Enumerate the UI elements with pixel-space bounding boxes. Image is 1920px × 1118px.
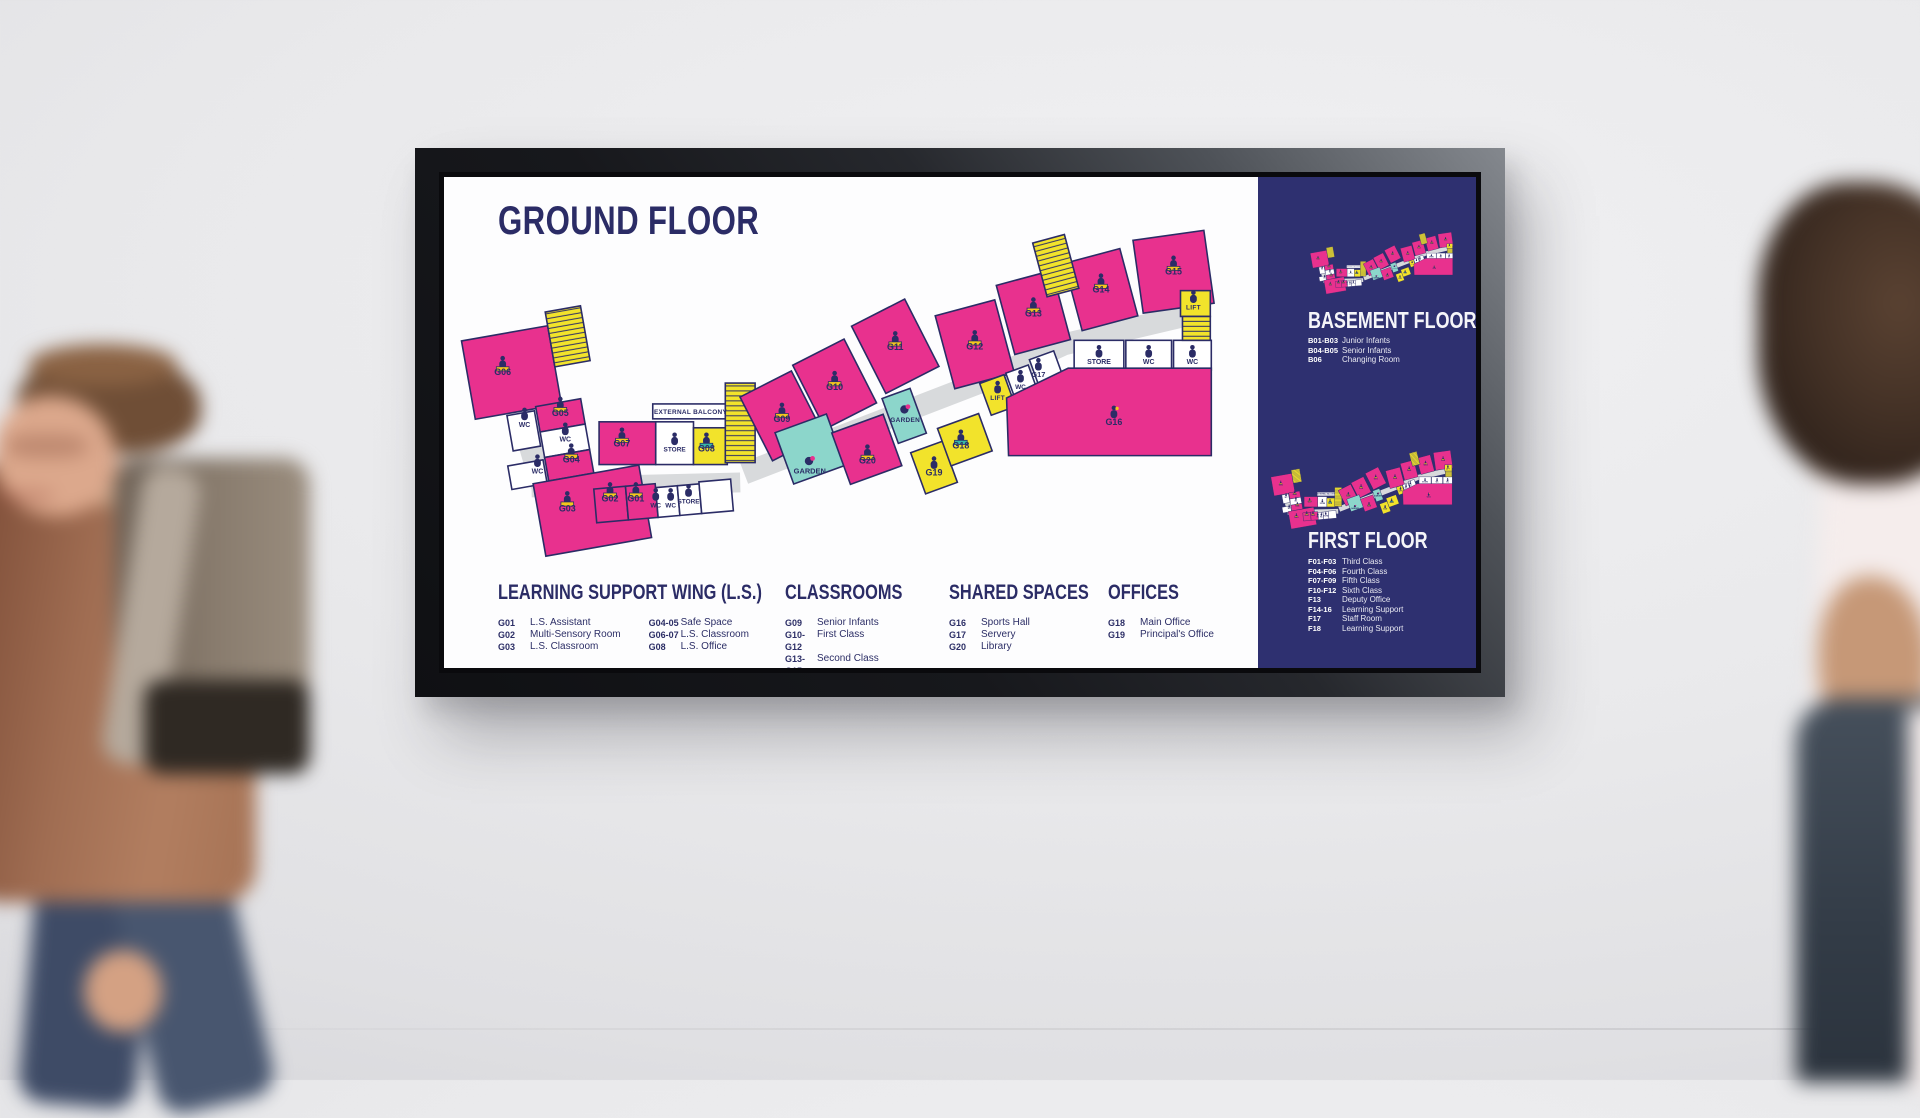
ground-floor-map: G06 G05 G04 G03 G02 G01 G07 G08 WC WC WC…: [450, 225, 1260, 560]
room-name: Library: [981, 641, 1012, 653]
room-name: Second Class: [817, 653, 879, 668]
legend-row: G13-G15Second Class: [785, 653, 879, 668]
room-label-g10: G10: [826, 382, 843, 392]
room-code: G17: [949, 629, 981, 641]
room-label-g14: G14: [1093, 285, 1110, 295]
legend-row: F17Staff Room: [1308, 614, 1403, 624]
room-code: B04-B05: [1308, 346, 1342, 356]
room-name: First Class: [817, 629, 864, 653]
room-code: G16: [949, 617, 981, 629]
legend-row: B01-B03Junior Infants: [1308, 336, 1400, 346]
room-name: L.S. Classroom: [681, 629, 749, 641]
room-label-wc: WC: [532, 469, 544, 476]
legend-row: G03L.S. Classroom: [498, 641, 621, 653]
legend-column: G04-05Safe Space G06-07L.S. Classroom G0…: [649, 617, 749, 653]
room-code: G08: [649, 641, 681, 653]
boy-backpack-bottom: [144, 680, 310, 774]
legend-row: G06-07L.S. Classroom: [649, 629, 749, 641]
room-name: Staff Room: [1342, 614, 1382, 624]
room-code: G09: [785, 617, 817, 629]
legend-row: B04-B05Senior Infants: [1308, 346, 1400, 356]
legend-row: G08L.S. Office: [649, 641, 749, 653]
room-label-wc: WC: [1015, 384, 1026, 391]
legend-row: F10-F12Sixth Class: [1308, 586, 1403, 596]
pedestrian-hair: [1758, 182, 1920, 484]
room-name: Third Class: [1342, 557, 1382, 567]
legend-row: G18Main Office: [1108, 617, 1214, 629]
boy-hand: [84, 950, 162, 1032]
room-code: G06-07: [649, 629, 681, 641]
room-label-g11: G11: [887, 342, 903, 352]
room-label-g08: G08: [698, 444, 715, 454]
room-label-g18: G18: [952, 441, 969, 451]
legend-section-title: LEARNING SUPPORT WING (L.S.): [498, 581, 768, 607]
room-label-g01: G01: [627, 493, 644, 503]
photo-scene: { "sign": { "title": "GROUND FLOOR", "co…: [0, 0, 1920, 1080]
room-label-g09: G09: [773, 414, 790, 424]
ground-floor-panel: GROUND FLOOR: [444, 177, 1258, 668]
room-code: F07-F09: [1308, 576, 1342, 586]
room-code: G20: [949, 641, 981, 653]
boy-hair-highlight: [28, 344, 178, 386]
room-name: Changing Room: [1342, 355, 1400, 365]
room-label-g02: G02: [602, 493, 619, 503]
room-name: Junior Infants: [1342, 336, 1390, 346]
pedestrian-shirt-edge: [1908, 708, 1920, 1088]
room-label-g19: G19: [926, 467, 943, 477]
room-name: Learning Support: [1342, 624, 1403, 634]
room-name: Deputy Office: [1342, 595, 1390, 605]
legend-row: G19Principal's Office: [1108, 629, 1214, 641]
room-label-store: STORE: [664, 447, 687, 454]
room-code: G18: [1108, 617, 1140, 629]
room-name: Senior Infants: [817, 617, 879, 629]
room-code: G03: [498, 641, 530, 653]
room-label-wc: WC: [665, 502, 676, 509]
room-name: L.S. Classroom: [530, 641, 598, 653]
other-floors-panel: BASEMENT FLOOR B01-B03Junior Infants B04…: [1258, 177, 1476, 668]
room-name: Main Office: [1140, 617, 1190, 629]
room-label-wc: WC: [519, 422, 531, 429]
room-code: F14-16: [1308, 605, 1342, 615]
sign-frame: GROUND FLOOR: [415, 148, 1505, 697]
legend-row: F01-F03Third Class: [1308, 557, 1403, 567]
basement-floor-title: BASEMENT FLOOR: [1308, 307, 1476, 334]
room-code: G19: [1108, 629, 1140, 641]
lift-label: LIFT: [990, 395, 1005, 402]
legend-offices: OFFICES G18Main Office G19Principal's Of…: [1108, 581, 1258, 641]
room-label-g12: G12: [966, 341, 983, 351]
room-name: Principal's Office: [1140, 629, 1214, 641]
legend-row: G04-05Safe Space: [649, 617, 749, 629]
legend-row: F04-F06Fourth Class: [1308, 567, 1403, 577]
room-label-g15: G15: [1165, 267, 1182, 277]
boy-face-shading: [6, 434, 88, 458]
first-floor-mini-map: [1268, 449, 1464, 530]
legend-row: B06Changing Room: [1308, 355, 1400, 365]
basement-floor-mini-map: [1308, 231, 1462, 295]
legend-row: G20Library: [949, 641, 1030, 653]
legend-row: G09Senior Infants: [785, 617, 879, 629]
room-code: G04-05: [649, 617, 681, 629]
room-code: F17: [1308, 614, 1342, 624]
legend-row: F18Learning Support: [1308, 624, 1403, 634]
legend-row: G16Sports Hall: [949, 617, 1030, 629]
legend-row: G01L.S. Assistant: [498, 617, 621, 629]
room-code: F10-F12: [1308, 586, 1342, 596]
legend-row: F13Deputy Office: [1308, 595, 1403, 605]
basement-floor-legend: B01-B03Junior Infants B04-B05Senior Infa…: [1308, 336, 1400, 365]
room-code: G01: [498, 617, 530, 629]
garden-label: GARDEN: [890, 417, 920, 424]
legend-section-title: OFFICES: [1108, 581, 1258, 607]
room-name: L.S. Assistant: [530, 617, 591, 629]
legend-row: G10-G12First Class: [785, 629, 879, 653]
legend-classrooms: CLASSROOMS G09Senior Infants G10-G12Firs…: [785, 581, 945, 668]
room-code: F01-F03: [1308, 557, 1342, 567]
room-name: L.S. Office: [681, 641, 728, 653]
room-label-g13: G13: [1025, 308, 1042, 318]
room-name: Multi-Sensory Room: [530, 629, 621, 641]
legend-row: F07-F09Fifth Class: [1308, 576, 1403, 586]
room-code: F18: [1308, 624, 1342, 634]
room-name: Sixth Class: [1342, 586, 1382, 596]
stairs: [1182, 316, 1210, 340]
room-code: B06: [1308, 355, 1342, 365]
room-name: Fifth Class: [1342, 576, 1380, 586]
legend-section-title: CLASSROOMS: [785, 581, 945, 607]
room-code: F13: [1308, 595, 1342, 605]
lift-label: LIFT: [1186, 305, 1201, 312]
legend-column: G01L.S. Assistant G02Multi-Sensory Room …: [498, 617, 621, 653]
first-floor-title: FIRST FLOOR: [1308, 527, 1461, 554]
frame-inner-lip: GROUND FLOOR: [439, 172, 1481, 673]
room-name: Safe Space: [681, 617, 733, 629]
room-name: Sports Hall: [981, 617, 1030, 629]
room-label-wc: WC: [1143, 359, 1155, 366]
external-balcony-label: EXTERNAL BALCONY: [654, 409, 728, 416]
blurred-pedestrian-boy: [0, 338, 316, 1080]
room-code: G10-G12: [785, 629, 817, 653]
room-label-wc: WC: [650, 502, 661, 509]
legend-row: F14-16Learning Support: [1308, 605, 1403, 615]
room-label-g20: G20: [859, 456, 876, 466]
room-label-g07: G07: [613, 439, 630, 449]
room-label-g04: G04: [563, 455, 580, 465]
room-name: Fourth Class: [1342, 567, 1387, 577]
legend-section-title: SHARED SPACES: [949, 581, 1099, 607]
legend-learning-support: LEARNING SUPPORT WING (L.S.) G01L.S. Ass…: [498, 581, 768, 653]
legend-row: G17Servery: [949, 629, 1030, 641]
boy-face-shading: [0, 490, 54, 502]
garden-label: GARDEN: [794, 467, 826, 476]
room-code: G13-G15: [785, 653, 817, 668]
room-label-wc: WC: [560, 437, 572, 444]
room-label-g17: G17: [1031, 370, 1045, 379]
floor-plan-svg: G06 G05 G04 G03 G02 G01 G07 G08 WC WC WC…: [450, 225, 1260, 560]
legend-row: G02Multi-Sensory Room: [498, 629, 621, 641]
room-label-store: STORE: [1087, 359, 1111, 366]
room-label-wc: WC: [1187, 359, 1199, 366]
room-name: Servery: [981, 629, 1015, 641]
wayfinding-sign: GROUND FLOOR: [444, 177, 1476, 668]
room-label-store: STORE: [677, 498, 700, 505]
blurred-pedestrian-right: [1738, 168, 1920, 1080]
room-code: B01-B03: [1308, 336, 1342, 346]
room-label-g03: G03: [559, 503, 576, 513]
room-store: [699, 479, 733, 513]
first-floor-legend: F01-F03Third Class F04-F06Fourth Class F…: [1308, 557, 1403, 633]
room-name: Senior Infants: [1342, 346, 1391, 356]
pedestrian-bag: [1796, 698, 1920, 1082]
room-code: F04-F06: [1308, 567, 1342, 577]
room-label-g16: G16: [1105, 417, 1122, 427]
room-code: G02: [498, 629, 530, 641]
building-plan: G06 G05 G04 G03 G02 G01 G07 G08 WC WC WC…: [459, 230, 1214, 560]
room-label-g06: G06: [494, 367, 511, 377]
room-name: Learning Support: [1342, 605, 1403, 615]
legend-shared-spaces: SHARED SPACES G16Sports Hall G17Servery …: [949, 581, 1099, 653]
room-label-g05: G05: [552, 408, 569, 418]
